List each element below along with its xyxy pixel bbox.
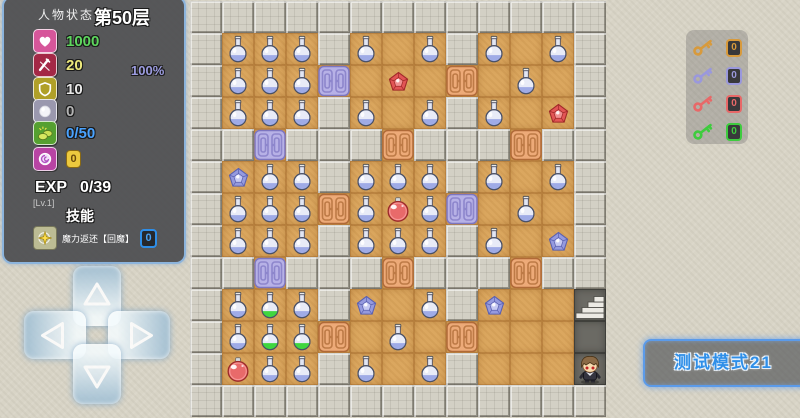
tile-wall: [574, 225, 606, 257]
tile-wall: [478, 1, 510, 33]
tile-wall: [542, 1, 574, 33]
blue-potion-tile[interactable]: [286, 225, 318, 257]
magic-defense-value: 0: [66, 103, 74, 120]
tile-wall: [318, 353, 350, 385]
tile-floor[interactable]: [510, 225, 542, 257]
tile-floor[interactable]: [478, 353, 510, 385]
tile-wall: [286, 257, 318, 289]
tile-floor[interactable]: [382, 289, 414, 321]
tile-wall: [318, 129, 350, 161]
tile-floor[interactable]: [478, 65, 510, 97]
tile-wall: [574, 65, 606, 97]
tile-floor[interactable]: [382, 353, 414, 385]
tile-wall: [446, 257, 478, 289]
blue-potion-tile[interactable]: [542, 161, 574, 193]
tile-wall: [222, 1, 254, 33]
blue-potion-tile[interactable]: [414, 161, 446, 193]
attack-value: 20: [66, 57, 83, 74]
panel-title: 人物状态: [38, 6, 94, 23]
tile-wall: [478, 257, 510, 289]
orb-icon: [33, 99, 57, 123]
blue-gem-tile[interactable]: [478, 289, 510, 321]
tile-dark-floor[interactable]: [574, 321, 606, 353]
tile-floor[interactable]: [478, 193, 510, 225]
blue-key-count-badge: 0: [726, 67, 742, 85]
blue-potion-tile[interactable]: [286, 353, 318, 385]
tile-floor[interactable]: [478, 321, 510, 353]
blue-potion-tile[interactable]: [350, 161, 382, 193]
tile-wall: [222, 257, 254, 289]
tile-wall: [574, 385, 606, 417]
tile-wall: [286, 1, 318, 33]
tile-wall: [254, 1, 286, 33]
floor-label: 第50层: [94, 4, 150, 30]
tile-wall: [414, 257, 446, 289]
tile-floor[interactable]: [510, 289, 542, 321]
blue-potion-tile[interactable]: [510, 193, 542, 225]
game-screen: 人物状态 第50层 1000201000/500 100% EXP 0/39 […: [0, 0, 800, 418]
red-key-count-badge: 0: [726, 95, 742, 113]
blue-potion-tile[interactable]: [286, 161, 318, 193]
blue-potion-tile[interactable]: [382, 161, 414, 193]
magic-coin-stat-row: 0: [33, 148, 81, 170]
tile-wall: [222, 385, 254, 417]
orange-door-tile[interactable]: [382, 129, 414, 161]
tile-wall: [542, 257, 574, 289]
character-status-panel: 人物状态 第50层 1000201000/500 100% EXP 0/39 […: [2, 0, 186, 264]
tile-floor[interactable]: [382, 97, 414, 129]
blue-potion-tile[interactable]: [286, 65, 318, 97]
tile-wall: [350, 385, 382, 417]
skill-row[interactable]: 魔力返还【回魔】 0: [33, 226, 157, 250]
tile-floor[interactable]: [542, 193, 574, 225]
tile-wall: [542, 385, 574, 417]
tile-wall: [190, 33, 222, 65]
arrow-right-icon: [124, 320, 155, 350]
tile-wall: [190, 65, 222, 97]
tile-wall: [190, 225, 222, 257]
blue-potion-tile[interactable]: [510, 65, 542, 97]
blue-potion-tile[interactable]: [478, 33, 510, 65]
red-gem-tile[interactable]: [382, 65, 414, 97]
magic-defense-stat-row: 0: [33, 100, 74, 122]
orange-door-tile[interactable]: [446, 321, 478, 353]
purple-door-tile[interactable]: [446, 193, 478, 225]
tile-wall: [190, 193, 222, 225]
blue-potion-tile[interactable]: [414, 225, 446, 257]
game-map: [190, 1, 606, 417]
blue-potion-tile[interactable]: [350, 97, 382, 129]
keys-panel: 0 0 0 0: [686, 30, 748, 144]
magic-coin-value: 0: [66, 150, 81, 168]
skills-heading: 技能: [66, 206, 94, 226]
tile-floor[interactable]: [510, 321, 542, 353]
yellow-key-row: 0: [686, 33, 748, 61]
tile-wall: [286, 385, 318, 417]
magic-return-skill-icon: [33, 226, 57, 250]
tile-floor[interactable]: [350, 65, 382, 97]
tile-wall: [190, 129, 222, 161]
test-mode-label: 测试模式21: [645, 341, 800, 385]
tile-wall: [318, 289, 350, 321]
tile-wall: [190, 97, 222, 129]
tile-wall: [318, 225, 350, 257]
blue-potion-tile[interactable]: [222, 65, 254, 97]
tile-floor[interactable]: [414, 321, 446, 353]
tile-wall: [478, 385, 510, 417]
tile-wall: [190, 321, 222, 353]
blue-potion-tile[interactable]: [254, 193, 286, 225]
tile-wall: [318, 97, 350, 129]
tile-wall: [414, 1, 446, 33]
blue-potion-tile[interactable]: [254, 353, 286, 385]
tile-floor[interactable]: [542, 65, 574, 97]
blue-potion-tile[interactable]: [222, 193, 254, 225]
tile-wall: [190, 385, 222, 417]
tile-wall: [318, 161, 350, 193]
green-potion-tile[interactable]: [254, 289, 286, 321]
tile-wall: [414, 385, 446, 417]
tile-wall: [190, 161, 222, 193]
tile-floor[interactable]: [510, 33, 542, 65]
blue-potion-tile[interactable]: [222, 97, 254, 129]
tile-wall: [574, 33, 606, 65]
blue-gem-tile[interactable]: [542, 225, 574, 257]
spiral-coin-icon: [33, 147, 57, 171]
blue-potion-tile[interactable]: [254, 161, 286, 193]
tile-floor[interactable]: [510, 161, 542, 193]
skill-count-badge: 0: [140, 229, 157, 248]
blue-potion-tile[interactable]: [254, 33, 286, 65]
green-key-icon: [690, 118, 716, 149]
orange-door-tile[interactable]: [510, 257, 542, 289]
exp-label: EXP: [35, 179, 67, 197]
blue-potion-tile[interactable]: [542, 33, 574, 65]
tile-wall: [510, 1, 542, 33]
tile-wall: [478, 129, 510, 161]
blue-potion-tile[interactable]: [254, 65, 286, 97]
tile-wall: [446, 33, 478, 65]
tile-wall: [382, 1, 414, 33]
orange-door-tile[interactable]: [318, 193, 350, 225]
tile-floor[interactable]: [350, 321, 382, 353]
tile-wall: [446, 129, 478, 161]
tile-floor[interactable]: [542, 353, 574, 385]
blue-key-row: 0: [686, 61, 748, 89]
tile-wall: [414, 129, 446, 161]
hp-stat-row: 1000: [33, 30, 99, 52]
red-gem-tile[interactable]: [542, 97, 574, 129]
tile-wall: [574, 193, 606, 225]
blue-potion-tile[interactable]: [222, 289, 254, 321]
tile-wall: [382, 385, 414, 417]
blue-potion-tile[interactable]: [478, 97, 510, 129]
orange-door-tile[interactable]: [318, 321, 350, 353]
tile-wall: [446, 161, 478, 193]
gold-value: 0/50: [66, 125, 95, 142]
red-potion-tile[interactable]: [222, 353, 254, 385]
blue-gem-tile[interactable]: [222, 161, 254, 193]
tile-wall: [446, 385, 478, 417]
yellow-key-count-badge: 0: [726, 39, 742, 57]
orange-door-tile[interactable]: [382, 257, 414, 289]
blue-potion-tile[interactable]: [222, 225, 254, 257]
blue-potion-tile[interactable]: [286, 289, 318, 321]
blue-potion-tile[interactable]: [222, 321, 254, 353]
red-potion-tile[interactable]: [382, 193, 414, 225]
defense-stat-row: 10: [33, 78, 83, 100]
blue-potion-tile[interactable]: [222, 33, 254, 65]
exp-value: 0/39: [80, 179, 111, 197]
hp-value: 1000: [66, 33, 99, 50]
tile-wall: [574, 97, 606, 129]
tile-wall: [350, 129, 382, 161]
blue-potion-tile[interactable]: [478, 161, 510, 193]
blue-potion-tile[interactable]: [414, 289, 446, 321]
blue-potion-tile[interactable]: [286, 193, 318, 225]
tile-floor[interactable]: [542, 289, 574, 321]
sword-icon: [33, 53, 57, 77]
heart-icon: [33, 29, 57, 53]
purple-door-tile[interactable]: [318, 65, 350, 97]
blue-potion-tile[interactable]: [478, 225, 510, 257]
tile-floor[interactable]: [510, 97, 542, 129]
tile-wall: [318, 385, 350, 417]
shield-icon: [33, 77, 57, 101]
level-label: [Lv.1]: [33, 198, 54, 208]
green-potion-tile[interactable]: [254, 321, 286, 353]
dpad-down-button[interactable]: [73, 344, 121, 404]
tile-wall: [510, 385, 542, 417]
green-key-count-badge: 0: [726, 123, 742, 141]
tile-wall: [190, 1, 222, 33]
blue-potion-tile[interactable]: [350, 193, 382, 225]
tile-wall: [350, 257, 382, 289]
red-key-row: 0: [686, 89, 748, 117]
tile-wall: [446, 225, 478, 257]
blue-potion-tile[interactable]: [414, 97, 446, 129]
blue-potion-tile[interactable]: [286, 33, 318, 65]
tile-floor[interactable]: [542, 321, 574, 353]
tile-floor[interactable]: [414, 65, 446, 97]
blue-potion-tile[interactable]: [382, 321, 414, 353]
hero-tile[interactable]: [574, 353, 606, 385]
skill-name: 魔力返还【回魔】: [62, 232, 134, 245]
attack-stat-row: 20: [33, 54, 83, 76]
orange-door-tile[interactable]: [446, 65, 478, 97]
purple-door-tile[interactable]: [254, 129, 286, 161]
blue-potion-tile[interactable]: [254, 97, 286, 129]
tile-wall: [446, 1, 478, 33]
tile-wall: [446, 97, 478, 129]
orange-door-tile[interactable]: [510, 129, 542, 161]
stairs-up-tile[interactable]: [574, 289, 606, 321]
blue-potion-tile[interactable]: [414, 33, 446, 65]
arrow-up-icon: [82, 281, 112, 312]
test-mode-box: 测试模式21: [643, 339, 800, 387]
tile-wall: [446, 289, 478, 321]
blue-potion-tile[interactable]: [414, 353, 446, 385]
tile-wall: [286, 129, 318, 161]
arrow-left-icon: [40, 320, 71, 350]
tile-wall: [446, 353, 478, 385]
tile-wall: [574, 1, 606, 33]
blue-potion-tile[interactable]: [350, 33, 382, 65]
coins-icon: [33, 121, 57, 145]
tile-wall: [254, 385, 286, 417]
blue-potion-tile[interactable]: [382, 225, 414, 257]
tile-wall: [222, 129, 254, 161]
hp-percent: 100%: [131, 63, 164, 78]
tile-wall: [318, 257, 350, 289]
green-key-row: 0: [686, 117, 748, 145]
tile-wall: [574, 257, 606, 289]
blue-potion-tile[interactable]: [254, 225, 286, 257]
green-potion-tile[interactable]: [286, 321, 318, 353]
tile-wall: [318, 33, 350, 65]
blue-potion-tile[interactable]: [414, 193, 446, 225]
tile-wall: [350, 1, 382, 33]
tile-wall: [190, 353, 222, 385]
tile-wall: [542, 129, 574, 161]
tile-wall: [574, 129, 606, 161]
tile-wall: [574, 161, 606, 193]
tile-wall: [190, 257, 222, 289]
blue-potion-tile[interactable]: [350, 353, 382, 385]
tile-floor[interactable]: [382, 33, 414, 65]
gold-stat-row: 0/50: [33, 122, 95, 144]
tile-floor[interactable]: [510, 353, 542, 385]
blue-potion-tile[interactable]: [286, 97, 318, 129]
blue-potion-tile[interactable]: [350, 225, 382, 257]
blue-gem-tile[interactable]: [350, 289, 382, 321]
defense-value: 10: [66, 81, 83, 98]
tile-wall: [190, 289, 222, 321]
arrow-down-icon: [82, 359, 112, 390]
purple-door-tile[interactable]: [254, 257, 286, 289]
tile-wall: [318, 1, 350, 33]
